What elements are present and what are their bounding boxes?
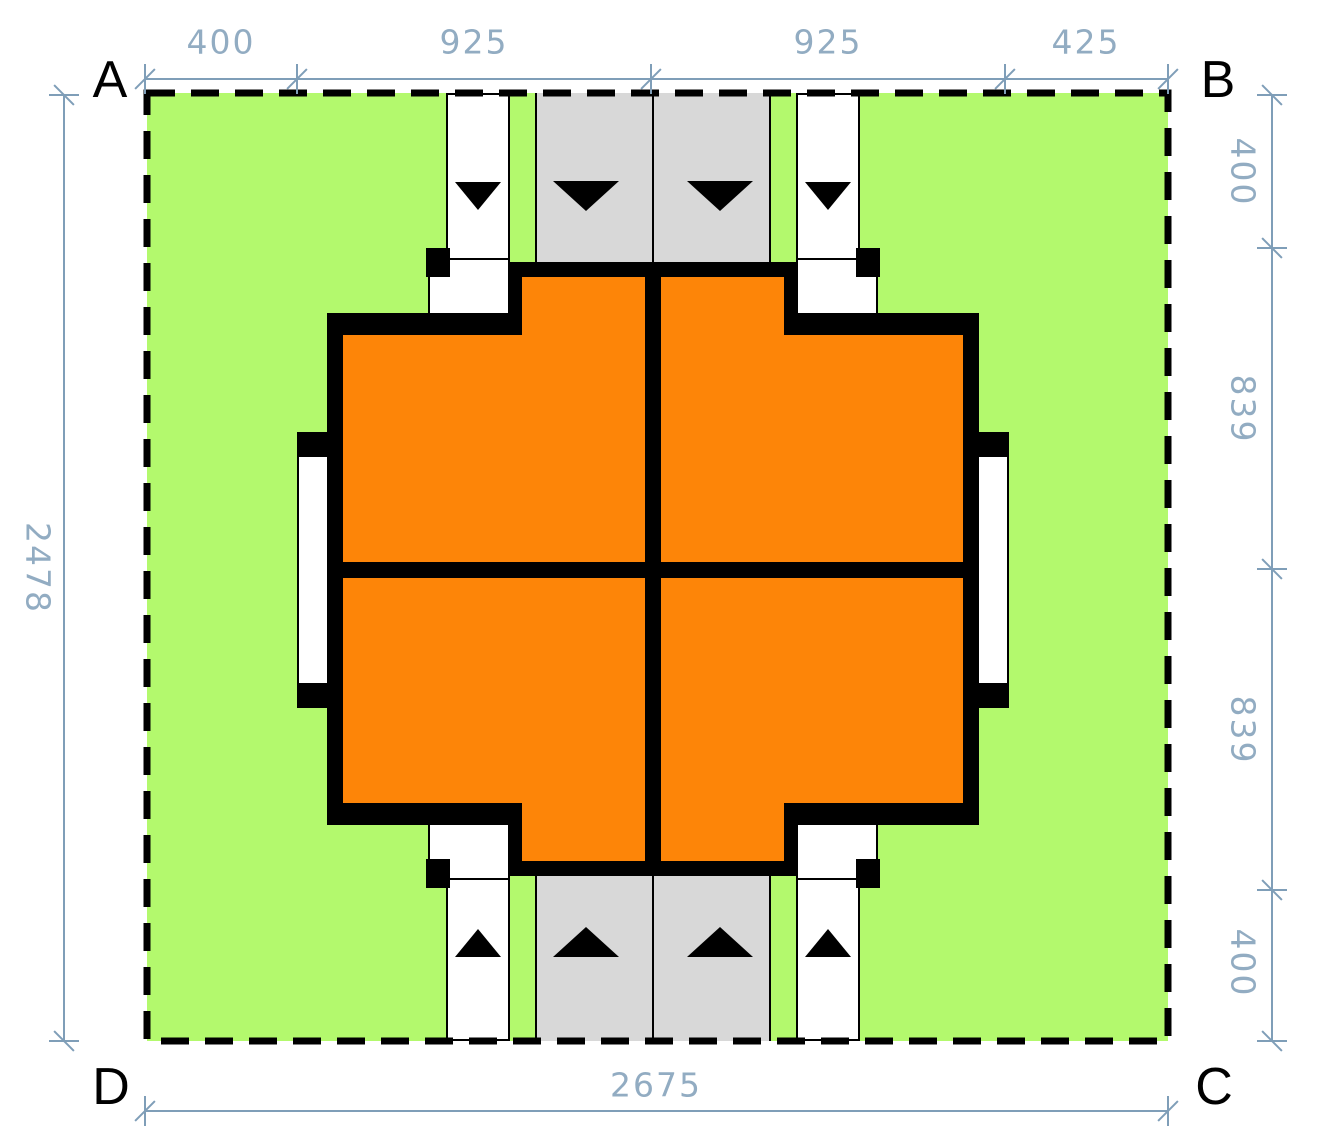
dim-right-3: 839 xyxy=(1224,696,1263,765)
dim-top-1: 400 xyxy=(187,23,256,62)
dim-top-4: 425 xyxy=(1052,23,1121,62)
dim-top-3: 925 xyxy=(794,23,863,62)
dim-right-1: 400 xyxy=(1224,138,1263,207)
dim-top-2: 925 xyxy=(440,23,509,62)
site-plan-canvas: 400 925 925 425 400 839 839 400 2478 267… xyxy=(0,0,1325,1138)
corner-label-b: B xyxy=(1201,54,1236,106)
site-boundary xyxy=(0,0,1325,1138)
corner-label-a: A xyxy=(93,54,128,106)
dim-left-1: 2478 xyxy=(19,522,58,614)
dim-right-4: 400 xyxy=(1224,929,1263,998)
dim-line-left xyxy=(63,95,65,1041)
corner-label-d: D xyxy=(92,1061,130,1113)
dim-bottom-1: 2675 xyxy=(610,1066,702,1105)
dim-line-bottom xyxy=(145,1110,1168,1112)
dim-right-2: 839 xyxy=(1224,375,1263,444)
corner-label-c: C xyxy=(1195,1061,1233,1113)
